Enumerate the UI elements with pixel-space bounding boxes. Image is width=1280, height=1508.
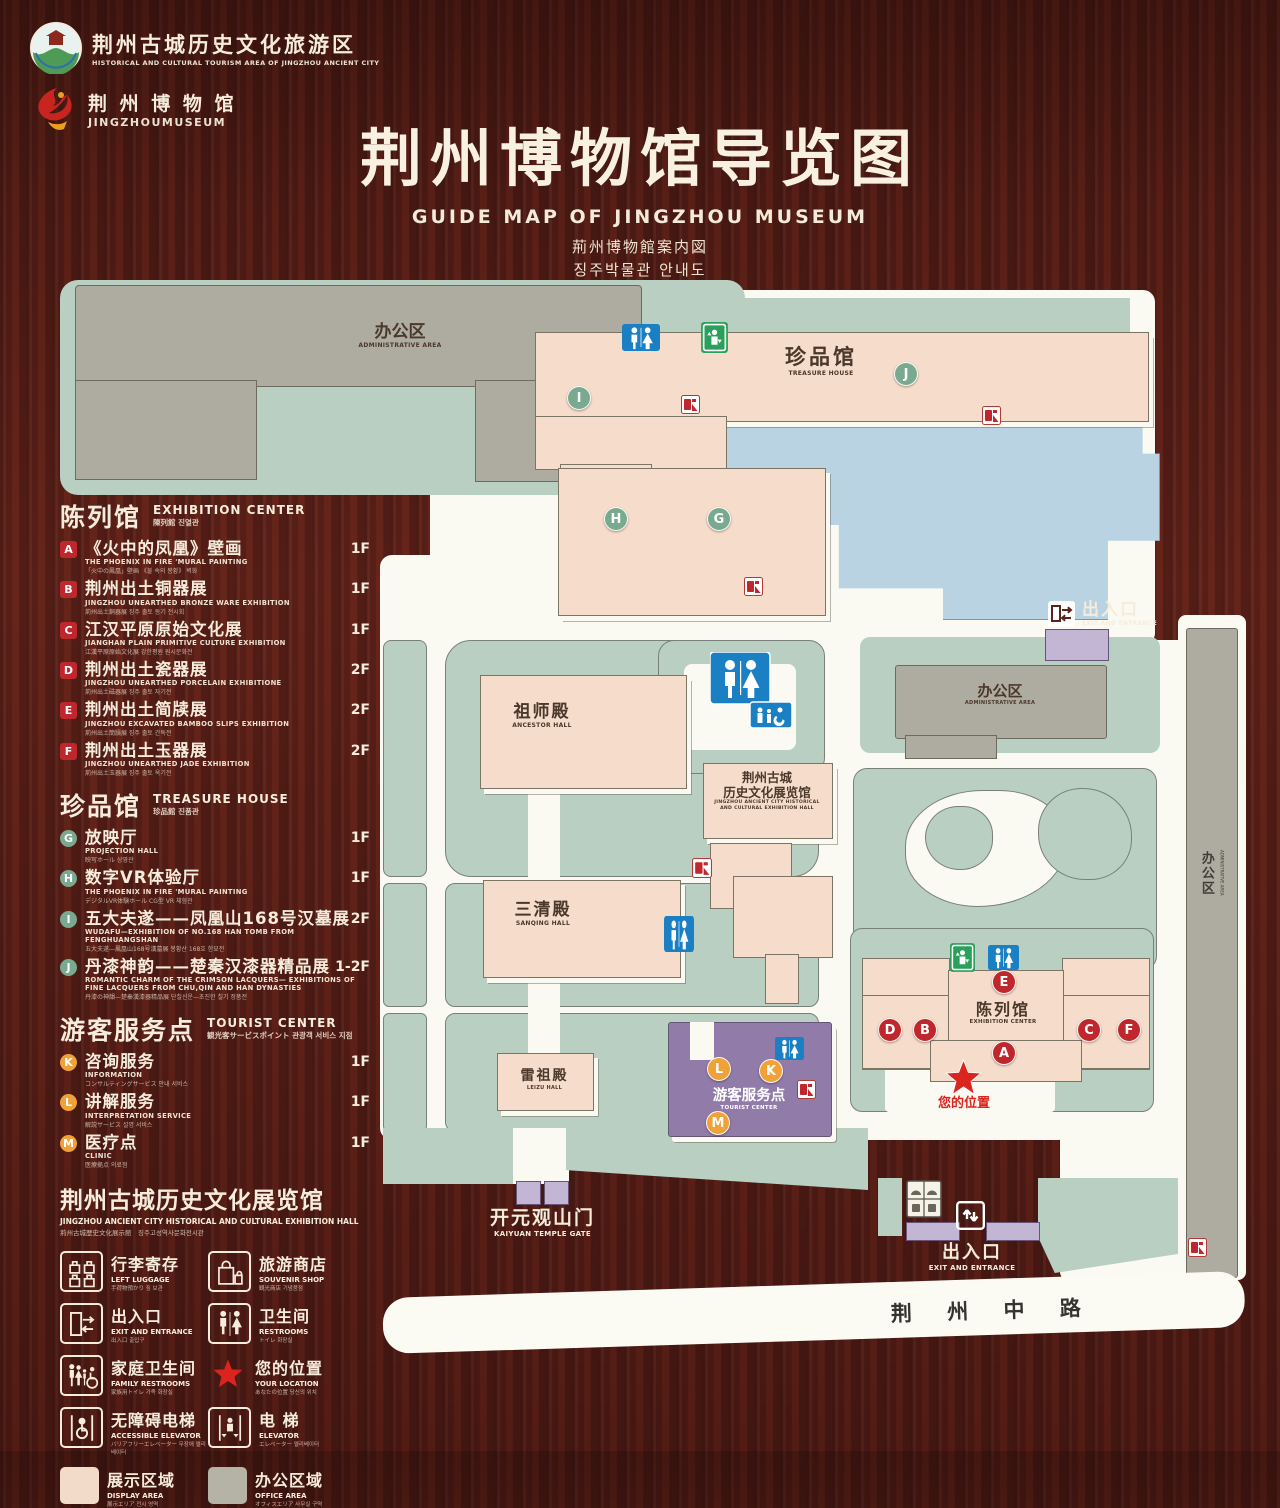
item-en: THE PHOENIX IN FIRE 'MURAL PAINTING	[85, 558, 248, 566]
section-title-zh: 珍品馆	[60, 787, 141, 823]
item-floor: 2F	[351, 743, 370, 759]
facility-family-restrooms: 家庭卫生间FAMILY RESTROOMS家族用トイレ 가족 화장실	[60, 1355, 208, 1396]
legend-item-J: J丹漆神韵——楚秦汉漆器精品展ROMANTIC CHARM OF THE CRI…	[60, 958, 370, 1001]
left-luggage-icon	[60, 1251, 103, 1292]
item-floor: 1F	[351, 1135, 370, 1151]
item-en: INFORMATION	[85, 1071, 188, 1079]
item-floor: 1-2F	[335, 959, 370, 975]
map-marker-g: G	[707, 507, 731, 531]
north-exit-label: 出入口EXIT AND ENTRANCE	[1082, 600, 1202, 628]
item-floor: 1F	[351, 581, 370, 597]
hall-note-zh: 荆州古城历史文化展览馆	[60, 1181, 370, 1215]
facility-zh: 行李寄存	[111, 1251, 179, 1275]
fire-icon	[982, 406, 1001, 425]
south-band-west	[383, 1128, 515, 1184]
legend-marker-G: G	[60, 830, 77, 847]
legend-item-G: G放映厅PROJECTION HALL映写ホール 상영관1F	[60, 829, 370, 864]
facility-en: OFFICE AREA	[255, 1492, 323, 1500]
road-label: 荆 州 中 路	[382, 1271, 1245, 1344]
exhibition-hall-label: 荆州古城 历史文化展览馆 JINGZHOU ANCIENT CITY HISTO…	[701, 770, 833, 811]
sanqing-hall-label: 三清殿SANQING HALL	[473, 900, 613, 928]
facility-zh: 无障碍电梯	[111, 1407, 208, 1431]
item-floor: 2F	[351, 702, 370, 718]
elevator-icon	[208, 1407, 251, 1448]
legend-item-A: A《火中的凤凰》壁画THE PHOENIX IN FIRE 'MURAL PAI…	[60, 540, 370, 575]
facility-en: ELEVATOR	[259, 1432, 319, 1440]
admin-nw-label: 办公区ADMINISTRATIVE AREA	[330, 322, 470, 350]
legend-item-I: I五大夫遂——凤凰山168号汉墓展WUDAFU—EXHIBITION OF NO…	[60, 910, 370, 953]
item-zh: 荆州出土铜器展	[85, 580, 290, 597]
facility-display-area: 展示区域DISPLAY AREA展示エリア 전시 영역	[60, 1467, 208, 1508]
facility-en: RESTROOMS	[259, 1328, 310, 1336]
fire-icon	[797, 1080, 816, 1099]
ancestor-hall-label: 祖师殿ANCESTOR HALL	[472, 702, 612, 730]
legend-marker-E: E	[60, 702, 77, 719]
item-zh: 荆州出土瓷器展	[85, 661, 282, 678]
item-floor: 2F	[351, 911, 370, 927]
facility-accessible-elevator: 无障碍电梯ACCESSIBLE ELEVATORバリアフリーエレベーター 무장애…	[60, 1407, 208, 1456]
facility-sub: 観光商店 기념품점	[259, 1284, 327, 1292]
office-area-icon	[208, 1467, 247, 1504]
item-sub: 荊州出土簡牘展 징주 출토 간독전	[85, 728, 289, 737]
item-zh: 咨询服务	[85, 1053, 188, 1070]
legend-hall-note: 荆州古城历史文化展览馆 JINGZHOU ANCIENT CITY HISTOR…	[60, 1181, 370, 1237]
restroom-icon	[622, 324, 660, 351]
section-title-en: EXHIBITION CENTER	[153, 503, 305, 517]
legend-item-D: D荆州出土瓷器展JINGZHOU UNEARTHED PORCELAIN EXH…	[60, 661, 370, 696]
legend-item-E: E荆州出土简牍展JINGZHOU EXCAVATED BAMBOO SLIPS …	[60, 701, 370, 736]
item-sub: 江漢平原原始文化展 강한평원 원시문화전	[85, 647, 286, 656]
item-zh: 《火中的凤凰》壁画	[85, 540, 248, 557]
treasure-house-west-wing	[535, 416, 727, 470]
item-sub: 解説サービス 설명 서비스	[85, 1120, 191, 1129]
kaiyuan-gate-right	[544, 1181, 569, 1205]
south-exit-label: 出入口EXIT AND ENTRANCE	[912, 1242, 1032, 1272]
restroom-icon	[988, 945, 1019, 970]
legend-section-tourist-center: 游客服务点TOURIST CENTER観光客サービスポイント 관광객 서비스 지…	[60, 1011, 370, 1169]
exit-ud-icon	[956, 1201, 985, 1230]
item-zh: 放映厅	[85, 829, 158, 846]
item-en: JINGZHOU UNEARTHED PORCELAIN EXHIBITIONE	[85, 679, 282, 687]
south-band-booth	[878, 1178, 902, 1236]
gate-walkway	[513, 1128, 569, 1184]
legend-marker-L: L	[60, 1094, 77, 1111]
kaiyuan-gate-left	[516, 1181, 541, 1205]
sanqing-hall-building	[483, 880, 681, 978]
facility-sub: 展示エリア 전시 영역	[107, 1500, 175, 1508]
facility-sub: 手荷物預かり 짐 보관	[111, 1284, 179, 1292]
facility-sub: あなたの位置 당신의 위치	[255, 1388, 323, 1396]
kaiyuan-gate-label: 开元观山门KAIYUAN TEMPLE GATE	[450, 1207, 635, 1238]
item-zh: 数字VR体验厅	[85, 869, 248, 886]
facility-en: FAMILY RESTROOMS	[111, 1380, 196, 1388]
facility-zh: 您的位置	[255, 1355, 323, 1379]
fire-icon	[681, 395, 700, 414]
item-floor: 1F	[351, 830, 370, 846]
facility-zh: 出入口	[111, 1303, 193, 1327]
restroom-icon	[664, 916, 694, 952]
legend-marker-J: J	[60, 959, 77, 976]
exhibition-center-label: 陈列馆EXHIBITION CENTER	[945, 1000, 1061, 1026]
item-zh: 丹漆神韵——楚秦汉漆器精品展	[85, 958, 370, 975]
map-marker-m: M	[706, 1111, 730, 1135]
section-title-en: TOURIST CENTER	[207, 1016, 353, 1030]
admin-nw-building-left	[75, 380, 257, 480]
item-sub: 荊州出土玉器展 징주 출토 옥기전	[85, 768, 250, 777]
courtyard-west-strip-1	[383, 640, 427, 877]
map-marker-f: F	[1117, 1018, 1141, 1042]
item-sub: コンサルティングサービス 안내 서비스	[85, 1079, 188, 1088]
courtyard-west-strip-3	[383, 1013, 427, 1132]
item-floor: 1F	[351, 622, 370, 638]
item-floor: 1F	[351, 1094, 370, 1110]
item-en: JINGZHOU EXCAVATED BAMBOO SLIPS EXHIBITI…	[85, 720, 289, 728]
map-marker-a: A	[992, 1041, 1016, 1065]
legend-item-K: K咨询服务INFORMATIONコンサルティングサービス 안내 서비스1F	[60, 1053, 370, 1088]
item-sub: 映写ホール 상영관	[85, 855, 158, 864]
item-en: PROJECTION HALL	[85, 847, 158, 855]
item-sub: 荊州出土銅器展 징주 출토 동기 전시회	[85, 607, 290, 616]
item-sub: 丹漆の神韻—楚秦漢漆器精品展 단칠신운—초진한 칠기 정품전	[85, 992, 370, 1001]
item-sub: 「火中の鳳凰」壁画 《불 속의 봉황》 벽화	[85, 566, 248, 575]
facility-en: EXIT AND ENTRANCE	[111, 1328, 193, 1336]
admin-strip-label: 办公区 ADMINISTRATIVE AREA	[1188, 850, 1234, 1000]
display-area-icon	[60, 1467, 99, 1504]
legend-item-H: H数字VR体验厅THE PHOENIX IN FIRE 'MURAL PAINT…	[60, 869, 370, 904]
facility-sub: エレベーター 엘리베이터	[259, 1440, 319, 1448]
south-gate-booth-right	[986, 1222, 1040, 1241]
leizu-hall-label: 雷祖殿LEIZU HALL	[482, 1068, 607, 1091]
facility-zh: 旅游商店	[259, 1251, 327, 1275]
facility-zh: 办公区域	[255, 1467, 323, 1491]
legend-marker-C: C	[60, 622, 77, 639]
facility-elevator: 电 梯ELEVATORエレベーター 엘리베이터	[208, 1407, 370, 1456]
legend-section-treasure-house: 珍品馆TREASURE HOUSE珍品館 진품관G放映厅PROJECTION H…	[60, 787, 370, 1001]
legend-section-exhibition-center: 陈列馆EXHIBITION CENTER陳列館 진열관A《火中的凤凰》壁画THE…	[60, 498, 370, 777]
item-en: JINGZHOU UNEARTHED BRONZE WARE EXHIBITIO…	[85, 599, 290, 607]
road-jingzhou-middle: 荆 州 中 路	[382, 1271, 1245, 1354]
item-zh: 讲解服务	[85, 1093, 191, 1110]
legend-marker-A: A	[60, 541, 77, 558]
exhibition-hall-south	[733, 876, 833, 958]
legend-facilities: 行李寄存LEFT LUGGAGE手荷物預かり 짐 보관旅游商店SOUVENIR …	[60, 1251, 370, 1508]
facility-sub: トイレ 화장실	[259, 1336, 310, 1344]
item-en: ROMANTIC CHARM OF THE CRIMSON LACQUERS— …	[85, 976, 370, 992]
family-restrooms-icon	[60, 1355, 103, 1396]
section-title-zh: 游客服务点	[60, 1011, 195, 1047]
fire-icon	[692, 858, 712, 878]
facility-en: DISPLAY AREA	[107, 1492, 175, 1500]
facility-zh: 展示区域	[107, 1467, 175, 1491]
section-title-sub: 観光客サービスポイント 관광객 서비스 지점	[207, 1030, 353, 1041]
legend-panel: 陈列馆EXHIBITION CENTER陳列館 진열관A《火中的凤凰》壁画THE…	[60, 498, 370, 1508]
map-marker-l: L	[707, 1057, 731, 1081]
courtyard-west-strip-2	[383, 883, 427, 1007]
item-zh: 江汉平原原始文化展	[85, 621, 286, 638]
map-marker-d: D	[878, 1018, 902, 1042]
legend-marker-H: H	[60, 870, 77, 887]
your-location-icon	[208, 1355, 247, 1392]
north-gate-booth	[1045, 629, 1109, 661]
legend-marker-B: B	[60, 581, 77, 598]
facility-your-location: 您的位置YOUR LOCATIONあなたの位置 당신의 위치	[208, 1355, 370, 1396]
item-zh: 五大夫遂——凤凰山168号汉墓展	[85, 910, 370, 927]
facility-zh: 家庭卫生间	[111, 1355, 196, 1379]
ancestor-hall-building	[480, 675, 687, 789]
fire-icon	[744, 577, 763, 596]
map-marker-i: I	[567, 386, 591, 410]
item-en: JINGZHOU UNEARTHED JADE EXHIBITION	[85, 760, 250, 768]
item-en: JIANGHAN PLAIN PRIMITIVE CULTURE EXHIBIT…	[85, 639, 286, 647]
facility-left-luggage: 行李寄存LEFT LUGGAGE手荷物預かり 짐 보관	[60, 1251, 208, 1292]
item-zh: 荆州出土简牍展	[85, 701, 289, 718]
item-sub: 五大夫遂—鳳凰山168号漢墓展 봉황산 168호 한묘전	[85, 944, 370, 953]
item-en: WUDAFU—EXHIBITION OF NO.168 HAN TOMB FRO…	[85, 928, 370, 944]
facility-zh: 卫生间	[259, 1303, 310, 1327]
garden-island-east	[1038, 788, 1132, 880]
legend-item-M: M医疗点CLINIC医療拠点 의료점1F	[60, 1134, 370, 1169]
legend-marker-D: D	[60, 662, 77, 679]
elevator-icon	[701, 322, 728, 353]
legend-item-F: F荆州出土玉器展JINGZHOU UNEARTHED JADE EXHIBITI…	[60, 742, 370, 777]
treasure-house-label: 珍品馆TREASURE HOUSE	[755, 345, 887, 377]
item-sub: 医療拠点 의료점	[85, 1160, 138, 1169]
map-marker-k: K	[759, 1059, 783, 1083]
section-title-zh: 陈列馆	[60, 498, 141, 534]
treasure-house-south-wing	[558, 468, 826, 616]
item-zh: 荆州出土玉器展	[85, 742, 250, 759]
exit-lr-icon	[1048, 601, 1075, 626]
legend-marker-M: M	[60, 1135, 77, 1152]
facility-en: LEFT LUGGAGE	[111, 1276, 179, 1284]
restroom-icon	[775, 1037, 804, 1060]
item-sub: デジタルVR体験ホール CG型 VR 체험관	[85, 896, 248, 905]
facility-sub: 家族用トイレ 가족 화장실	[111, 1388, 196, 1396]
facility-sub: 出入口 출입구	[111, 1336, 193, 1344]
elevator-icon	[950, 943, 975, 972]
south-band-center	[566, 1128, 868, 1190]
hall-note-sub: 荊州古城歴史文化展示館 징주고성역사문화전시관	[60, 1227, 370, 1237]
facility-restrooms: 卫生间RESTROOMSトイレ 화장실	[208, 1303, 370, 1344]
facility-exit-entrance: 出入口EXIT AND ENTRANCE出入口 출입구	[60, 1303, 208, 1344]
map-marker-h: H	[604, 507, 628, 531]
section-title-sub: 珍品館 진품관	[153, 806, 289, 817]
legend-item-B: B荆州出土铜器展JINGZHOU UNEARTHED BRONZE WARE E…	[60, 580, 370, 615]
map-marker-b: B	[913, 1018, 937, 1042]
facility-sub: オフィスエリア 사무실 구역	[255, 1500, 323, 1508]
legend-marker-I: I	[60, 911, 77, 928]
hall-note-en: JINGZHOU ANCIENT CITY HISTORICAL AND CUL…	[60, 1217, 370, 1226]
item-floor: 2F	[351, 662, 370, 678]
legend-marker-F: F	[60, 743, 77, 760]
map-marker-e: E	[992, 970, 1016, 994]
tourist-center-label: 游客服务点TOURIST CENTER	[688, 1088, 810, 1112]
facility-office-area: 办公区域OFFICE AREAオフィスエリア 사무실 구역	[208, 1467, 370, 1508]
facility-sub: バリアフリーエレベーター 무장애 엘리베이터	[111, 1440, 208, 1456]
map-marker-j: J	[894, 362, 918, 386]
section-title-sub: 陳列館 진열관	[153, 517, 305, 528]
restrooms-icon	[208, 1303, 251, 1344]
exit-entrance-icon	[60, 1303, 103, 1344]
item-en: INTERPRETATION SERVICE	[85, 1112, 191, 1120]
fire-icon	[1188, 1238, 1207, 1257]
legend-sections: 陈列馆EXHIBITION CENTER陳列館 진열관A《火中的凤凰》壁画THE…	[60, 498, 370, 1169]
item-floor: 1F	[351, 1054, 370, 1070]
garden-island-west	[925, 806, 993, 870]
facility-en: YOUR LOCATION	[255, 1380, 323, 1388]
facility-en: SOUVENIR SHOP	[259, 1276, 327, 1284]
section-title-en: TREASURE HOUSE	[153, 792, 289, 806]
exhibition-hall-tail	[765, 954, 799, 1004]
facility-en: ACCESSIBLE ELEVATOR	[111, 1432, 208, 1440]
ticket-icon	[906, 1180, 942, 1218]
admin-east-building-annex	[905, 735, 997, 759]
item-en: THE PHOENIX IN FIRE 'MURAL PAINTING	[85, 888, 248, 896]
item-floor: 1F	[351, 870, 370, 886]
item-zh: 医疗点	[85, 1134, 138, 1151]
item-floor: 1F	[351, 541, 370, 557]
legend-marker-K: K	[60, 1054, 77, 1071]
map-marker-c: C	[1077, 1018, 1101, 1042]
facility-souvenir-shop: 旅游商店SOUVENIR SHOP観光商店 기념품점	[208, 1251, 370, 1292]
facility-zh: 电 梯	[259, 1407, 319, 1431]
legend-item-L: L讲解服务INTERPRETATION SERVICE解説サービス 설명 서비스…	[60, 1093, 370, 1128]
tourist-center-notch	[690, 1022, 714, 1060]
item-en: CLINIC	[85, 1152, 138, 1160]
legend-item-C: C江汉平原原始文化展JIANGHAN PLAIN PRIMITIVE CULTU…	[60, 621, 370, 656]
accessible-elevator-icon	[60, 1407, 103, 1448]
restroom-family-icon	[710, 652, 792, 728]
south-gate-booth-left	[906, 1222, 960, 1241]
star-icon	[943, 1058, 984, 1099]
admin-east-label: 办公区ADMINISTRATIVE AREA	[930, 682, 1070, 706]
souvenir-shop-icon	[208, 1251, 251, 1292]
item-sub: 荊州出土磁器展 징주 출토 자기전	[85, 687, 282, 696]
